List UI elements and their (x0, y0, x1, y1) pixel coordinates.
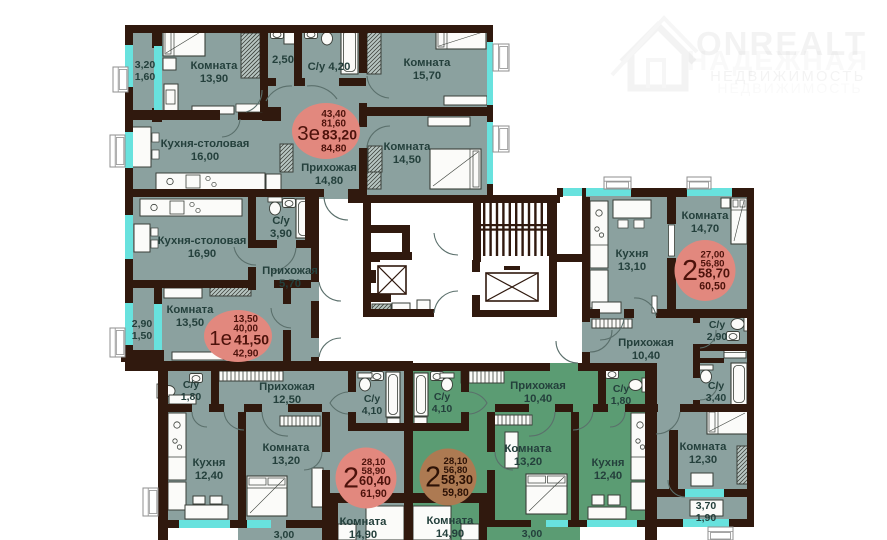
svg-text:Комната: Комната (427, 515, 475, 527)
svg-text:59,80: 59,80 (442, 487, 469, 499)
svg-text:Кухня: Кухня (192, 457, 225, 469)
svg-text:84,80: 84,80 (321, 144, 347, 155)
svg-text:15,70: 15,70 (413, 70, 441, 82)
svg-text:1,80: 1,80 (611, 395, 632, 407)
svg-text:14,50: 14,50 (393, 154, 421, 166)
svg-text:12,30: 12,30 (689, 454, 717, 466)
svg-text:14,70: 14,70 (691, 223, 719, 235)
svg-text:58,70: 58,70 (698, 266, 730, 281)
svg-text:С/у: С/у (434, 391, 451, 403)
svg-text:Комната: Комната (384, 141, 432, 153)
svg-text:16,00: 16,00 (191, 151, 219, 163)
svg-text:1,90: 1,90 (696, 512, 717, 524)
svg-text:13,90: 13,90 (200, 73, 228, 85)
svg-text:Прихожая: Прихожая (259, 381, 315, 393)
svg-text:42,90: 42,90 (233, 349, 259, 360)
svg-text:Прихожая: Прихожая (618, 337, 674, 349)
svg-text:13,20: 13,20 (514, 456, 542, 468)
svg-text:С/у: С/у (708, 380, 725, 392)
svg-text:Прихожая: Прихожая (510, 380, 566, 392)
svg-text:2: 2 (682, 255, 698, 287)
svg-text:1,50: 1,50 (132, 330, 153, 342)
svg-text:60,50: 60,50 (699, 280, 726, 292)
svg-text:НЕДВИЖИМОСТЬ: НЕДВИЖИМОСТЬ (717, 80, 862, 96)
svg-text:1е: 1е (209, 327, 232, 350)
svg-text:Кухня-столовая: Кухня-столовая (161, 138, 250, 150)
svg-text:1,60: 1,60 (135, 71, 156, 83)
svg-text:3,40: 3,40 (706, 392, 727, 404)
svg-text:14,90: 14,90 (436, 528, 464, 540)
svg-text:4,10: 4,10 (432, 403, 453, 415)
svg-text:10,40: 10,40 (632, 350, 660, 362)
svg-text:Комната: Комната (680, 441, 728, 453)
svg-text:2,90: 2,90 (707, 331, 728, 343)
svg-text:61,90: 61,90 (360, 488, 387, 500)
svg-text:16,90: 16,90 (188, 248, 216, 260)
svg-text:Кухня: Кухня (615, 248, 648, 260)
svg-text:3,70: 3,70 (696, 500, 717, 512)
svg-text:14,80: 14,80 (315, 175, 343, 187)
svg-text:Прихожая: Прихожая (301, 162, 357, 174)
svg-text:5,70: 5,70 (279, 278, 301, 290)
svg-text:Комната: Комната (682, 210, 730, 222)
svg-text:С/у: С/у (272, 215, 290, 227)
svg-text:3,20: 3,20 (135, 59, 156, 71)
svg-text:10,40: 10,40 (524, 393, 552, 405)
svg-text:14,90: 14,90 (349, 529, 377, 540)
svg-text:2,50: 2,50 (272, 54, 294, 66)
svg-text:3е: 3е (297, 122, 320, 145)
svg-text:НАДЕЖНАЯ: НАДЕЖНАЯ (687, 45, 869, 76)
svg-text:60,40: 60,40 (359, 473, 391, 488)
svg-text:Комната: Комната (263, 442, 311, 454)
svg-text:83,20: 83,20 (322, 127, 357, 143)
svg-text:Комната: Комната (167, 304, 215, 316)
svg-text:Прихожая: Прихожая (262, 265, 318, 277)
svg-text:12,40: 12,40 (594, 470, 622, 482)
svg-text:58,30: 58,30 (441, 472, 473, 487)
svg-text:13,10: 13,10 (618, 261, 646, 273)
svg-text:Кухня-столовая: Кухня-столовая (158, 235, 247, 247)
svg-text:С/у 4,20: С/у 4,20 (308, 61, 351, 73)
svg-text:2: 2 (343, 463, 359, 495)
svg-text:3,00: 3,00 (274, 529, 295, 540)
svg-text:2,90: 2,90 (132, 318, 153, 330)
svg-text:4,10: 4,10 (362, 405, 383, 417)
svg-text:С/у: С/у (183, 379, 200, 391)
svg-text:С/у: С/у (613, 383, 630, 395)
svg-text:Комната: Комната (191, 60, 239, 72)
svg-text:13,50: 13,50 (176, 317, 204, 329)
svg-text:13,20: 13,20 (272, 455, 300, 467)
svg-text:2: 2 (425, 462, 441, 494)
svg-text:12,50: 12,50 (273, 394, 301, 406)
svg-text:С/у: С/у (364, 393, 381, 405)
svg-text:3,00: 3,00 (522, 528, 543, 540)
svg-text:1,80: 1,80 (181, 391, 202, 403)
svg-text:41,50: 41,50 (234, 332, 269, 348)
svg-text:Кухня: Кухня (591, 457, 624, 469)
svg-text:Комната: Комната (404, 57, 452, 69)
svg-text:12,40: 12,40 (195, 470, 223, 482)
svg-text:Комната: Комната (505, 443, 553, 455)
svg-text:С/у: С/у (709, 319, 726, 331)
svg-text:Комната: Комната (340, 516, 388, 528)
svg-text:3,90: 3,90 (270, 228, 292, 240)
